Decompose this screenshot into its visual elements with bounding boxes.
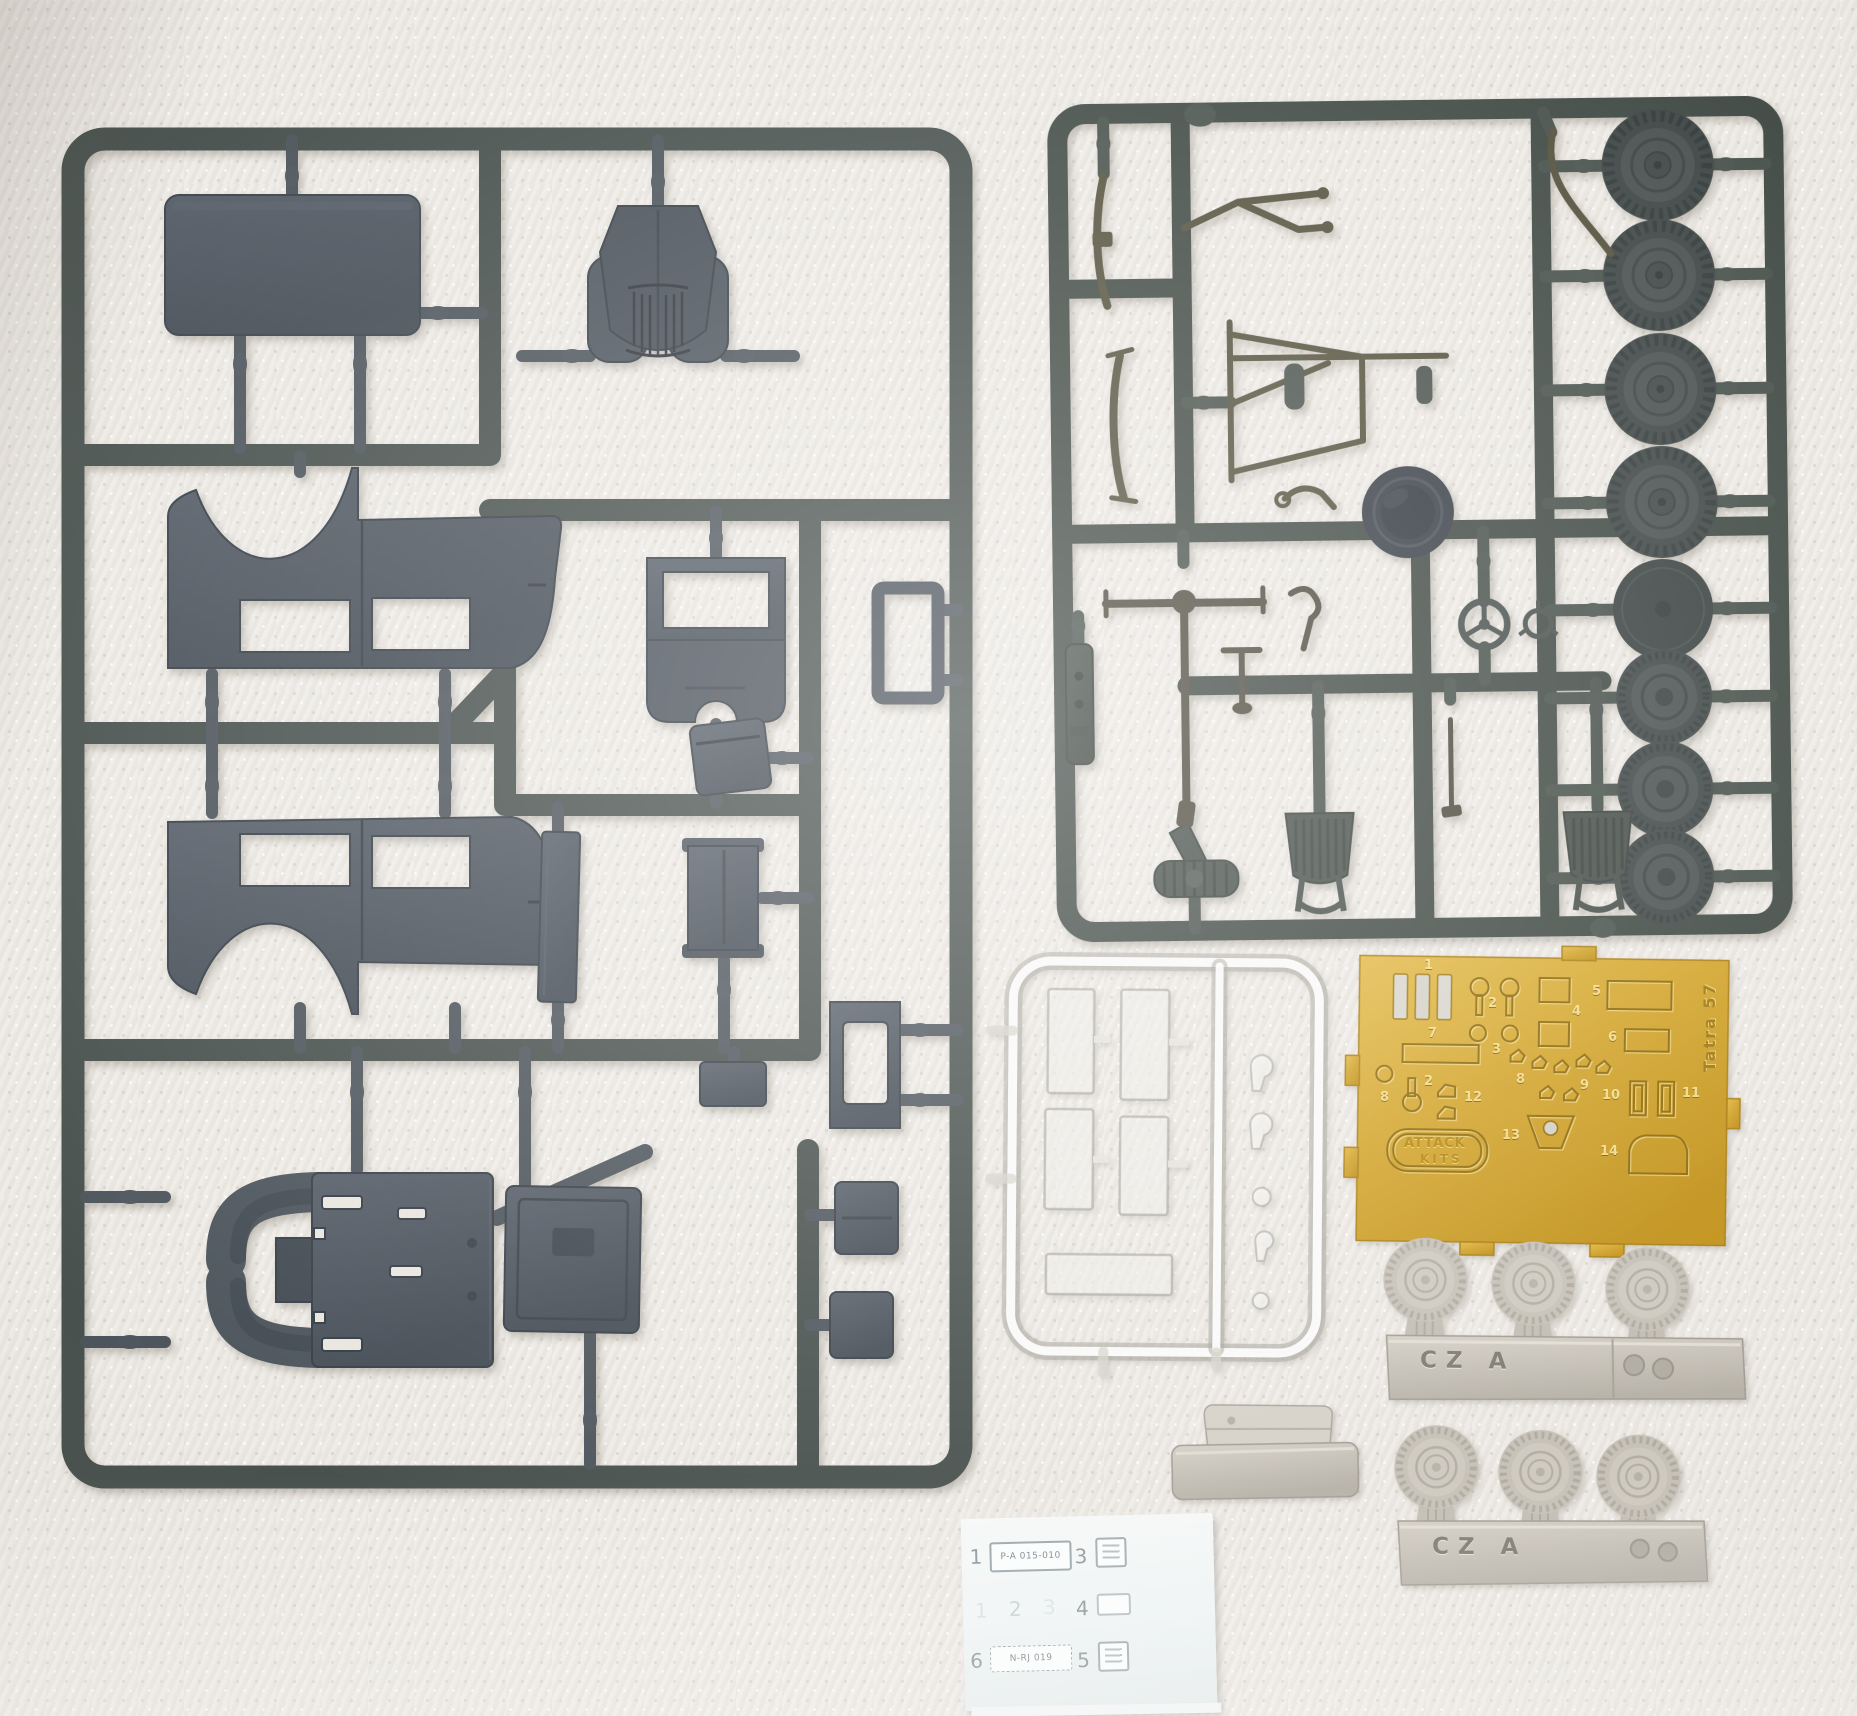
running-board-plank-part (538, 832, 580, 1003)
sprue-wheel (1601, 108, 1714, 221)
spare-wheel-cover-part (1361, 466, 1454, 559)
side-frame-part (878, 588, 938, 698)
sprue-wheel (1604, 332, 1717, 445)
decal-number: 1 (969, 1545, 982, 1569)
window-pane (1119, 1117, 1168, 1215)
small-part-s2 (835, 1182, 898, 1254)
decal-plate: N-RJ 019 (990, 1644, 1073, 1672)
small-box-part-b (682, 838, 764, 958)
decal-plate (1097, 1593, 1132, 1616)
sprue-wheel (1618, 828, 1715, 925)
small-part-s1 (700, 1062, 766, 1106)
resin-wheel (1394, 1425, 1479, 1526)
window-panes (1044, 989, 1175, 1295)
window-pane (1120, 990, 1169, 1100)
decal-plate-small (1095, 1537, 1127, 1568)
exhaust-part (1154, 822, 1239, 898)
seat-part (1286, 813, 1355, 912)
resin-wheel-strip-2 (1394, 1425, 1709, 1587)
floor-pan-part (504, 1186, 642, 1333)
clear-window-sprue (988, 960, 1320, 1375)
decal-number: 4 (1076, 1596, 1089, 1620)
hood-grille-part (588, 206, 728, 362)
chassis-plate-part (1065, 644, 1093, 764)
photo-etch-fret (1343, 943, 1742, 1258)
decal-number: 5 (1077, 1648, 1090, 1672)
decal-number-ghost: 2 (1009, 1597, 1022, 1621)
sprue-wheel (1602, 218, 1715, 331)
window-pane (1045, 1109, 1094, 1209)
windshield-cowl-part (647, 558, 785, 722)
decal-plate: P-A 015-010 (989, 1540, 1072, 1572)
resin-wheel (1604, 1247, 1690, 1348)
roof-panel-part (165, 195, 420, 335)
resin-wheel-strip-1 (1382, 1237, 1748, 1405)
resin-wheel (1490, 1241, 1576, 1342)
photo-scene: 1 2 4 5 3 6 7 8 9 8 2 12 10 11 13 14 Tat… (0, 0, 1857, 1716)
decal-plate-small (1098, 1641, 1130, 1672)
left-sprue (73, 139, 961, 1477)
decal-number-ghost: 3 (1043, 1595, 1056, 1619)
sprue-wheel (1605, 445, 1718, 558)
resin-dashboard-part (1171, 1402, 1359, 1499)
sprue-wheel-column (1601, 108, 1723, 925)
body-side-panel-lower (168, 817, 562, 1014)
decal-number-ghost: 1 (975, 1598, 988, 1622)
resin-wheel (1498, 1430, 1583, 1531)
firewall-frame-part (830, 1002, 900, 1128)
small-part-s3 (830, 1292, 893, 1358)
resin-wheel (1382, 1237, 1468, 1338)
chassis-fender-assembly (226, 1173, 493, 1367)
decal-number: 6 (970, 1649, 983, 1673)
spare-wheel-disc (1612, 558, 1713, 659)
seat-part (1564, 811, 1633, 910)
sprue-wheel (1616, 648, 1713, 745)
resin-wheel (1596, 1434, 1681, 1535)
small-box-part-a (689, 718, 772, 797)
decal-number: 3 (1074, 1544, 1087, 1568)
window-pane (1048, 989, 1095, 1093)
body-side-panel-upper (168, 468, 561, 668)
decal-sheet: 1 P-A 015-010 3 1 2 3 4 6 N-RJ 019 5 (961, 1513, 1218, 1711)
decal-plate-text: N-RJ 019 (1010, 1653, 1053, 1664)
decal-plate-text: P-A 015-010 (1000, 1551, 1061, 1562)
right-sprue (1057, 96, 1783, 945)
windshield-pane (1046, 1254, 1172, 1295)
